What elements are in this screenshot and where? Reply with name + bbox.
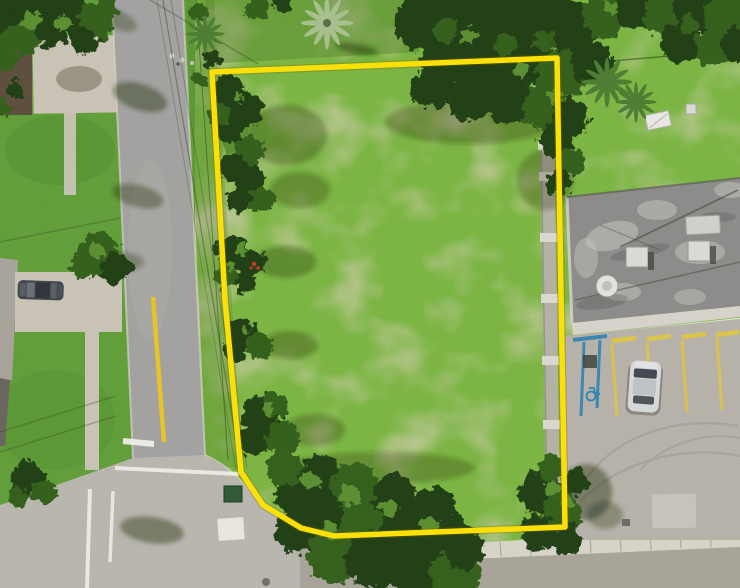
aerial-photo: [0, 0, 740, 588]
photo-grain: [0, 0, 740, 588]
